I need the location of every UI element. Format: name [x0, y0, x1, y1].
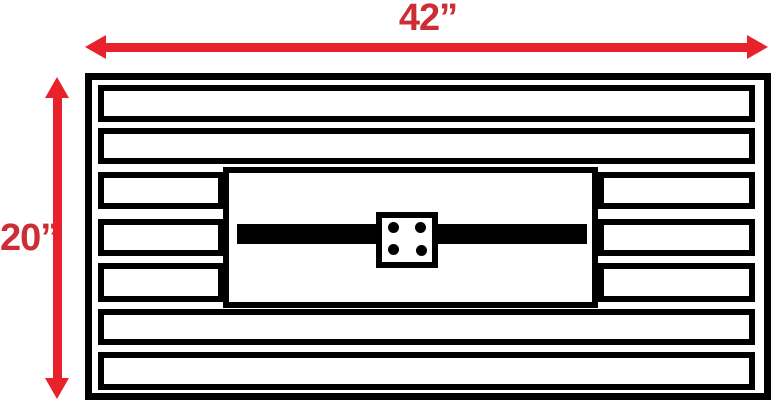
- slat-5-right-segment: [598, 263, 755, 302]
- bolt-hole-icon: [415, 222, 426, 233]
- slat-3-left-segment: [98, 172, 224, 209]
- width-dimension-label: 42”: [368, 0, 488, 36]
- bolt-plate: [376, 212, 438, 268]
- arrowhead-up-icon: [45, 77, 69, 98]
- slat-1: [98, 85, 755, 122]
- slat-6: [98, 309, 755, 345]
- slat-4-left-segment: [98, 219, 224, 256]
- arrowhead-right-icon: [747, 35, 768, 59]
- arrowhead-left-icon: [85, 35, 106, 59]
- bolt-hole-icon: [388, 244, 399, 255]
- slat-4-right-segment: [598, 219, 755, 256]
- height-dimension-label: 20”: [0, 220, 50, 256]
- diagram-canvas: 42” 20”: [0, 0, 774, 404]
- height-dimension-arrow: [53, 93, 62, 385]
- arrowhead-down-icon: [45, 378, 69, 399]
- slat-2: [98, 128, 755, 164]
- slat-3-right-segment: [598, 172, 755, 209]
- width-dimension-arrow: [101, 43, 752, 52]
- bolt-hole-icon: [388, 222, 399, 233]
- slat-5-left-segment: [98, 263, 224, 302]
- slat-7: [98, 352, 755, 390]
- bolt-hole-icon: [416, 245, 427, 256]
